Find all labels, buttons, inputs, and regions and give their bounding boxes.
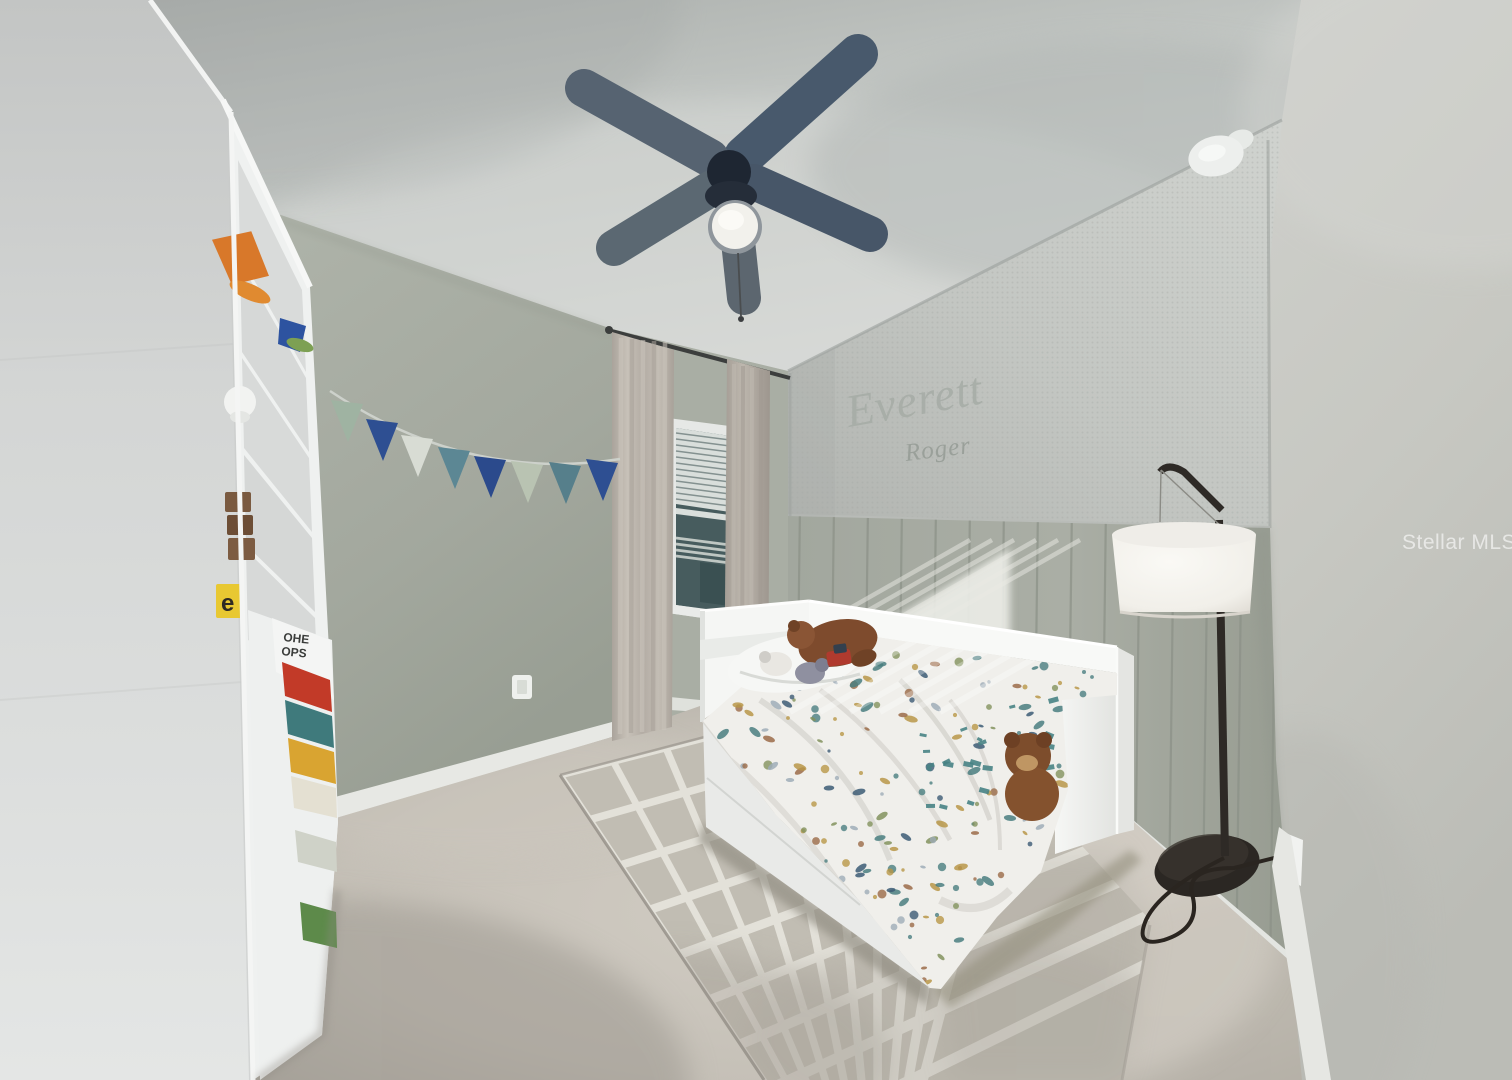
svg-text:e: e (221, 590, 234, 617)
svg-text:Stellar MLS: Stellar MLS (1402, 531, 1512, 554)
svg-text:OPS: OPS (281, 644, 308, 661)
